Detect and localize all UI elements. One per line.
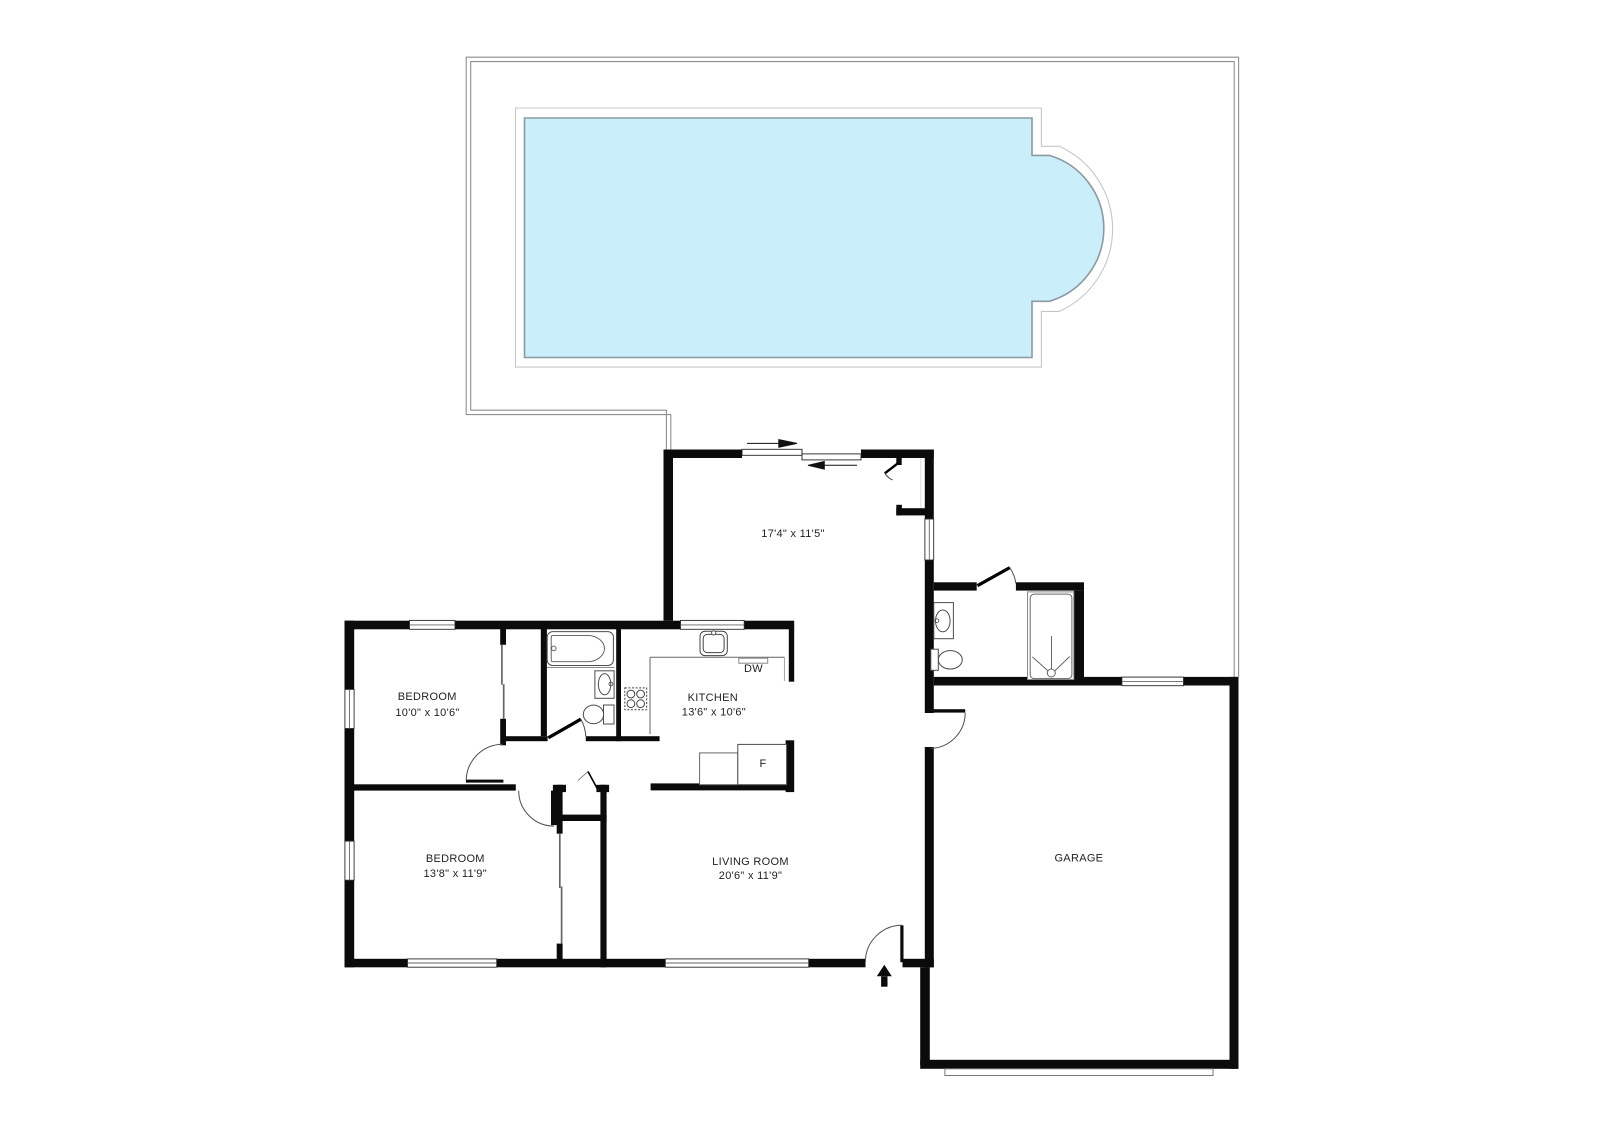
svg-text:DW: DW [744,663,763,675]
svg-text:F: F [759,758,766,770]
svg-text:13'6" x 10'6": 13'6" x 10'6" [682,706,746,718]
svg-text:BEDROOM: BEDROOM [398,691,457,703]
svg-text:BEDROOM: BEDROOM [426,853,485,865]
svg-text:KITCHEN: KITCHEN [688,692,738,704]
svg-text:GARAGE: GARAGE [1054,852,1103,864]
svg-text:20'6" x 11'9": 20'6" x 11'9" [719,870,782,882]
svg-text:10'0" x 10'6": 10'0" x 10'6" [395,707,459,719]
svg-text:LIVING ROOM: LIVING ROOM [712,856,789,868]
svg-text:13'8" x 11'9": 13'8" x 11'9" [423,868,486,880]
svg-text:17'4" x 11'5": 17'4" x 11'5" [761,528,824,540]
